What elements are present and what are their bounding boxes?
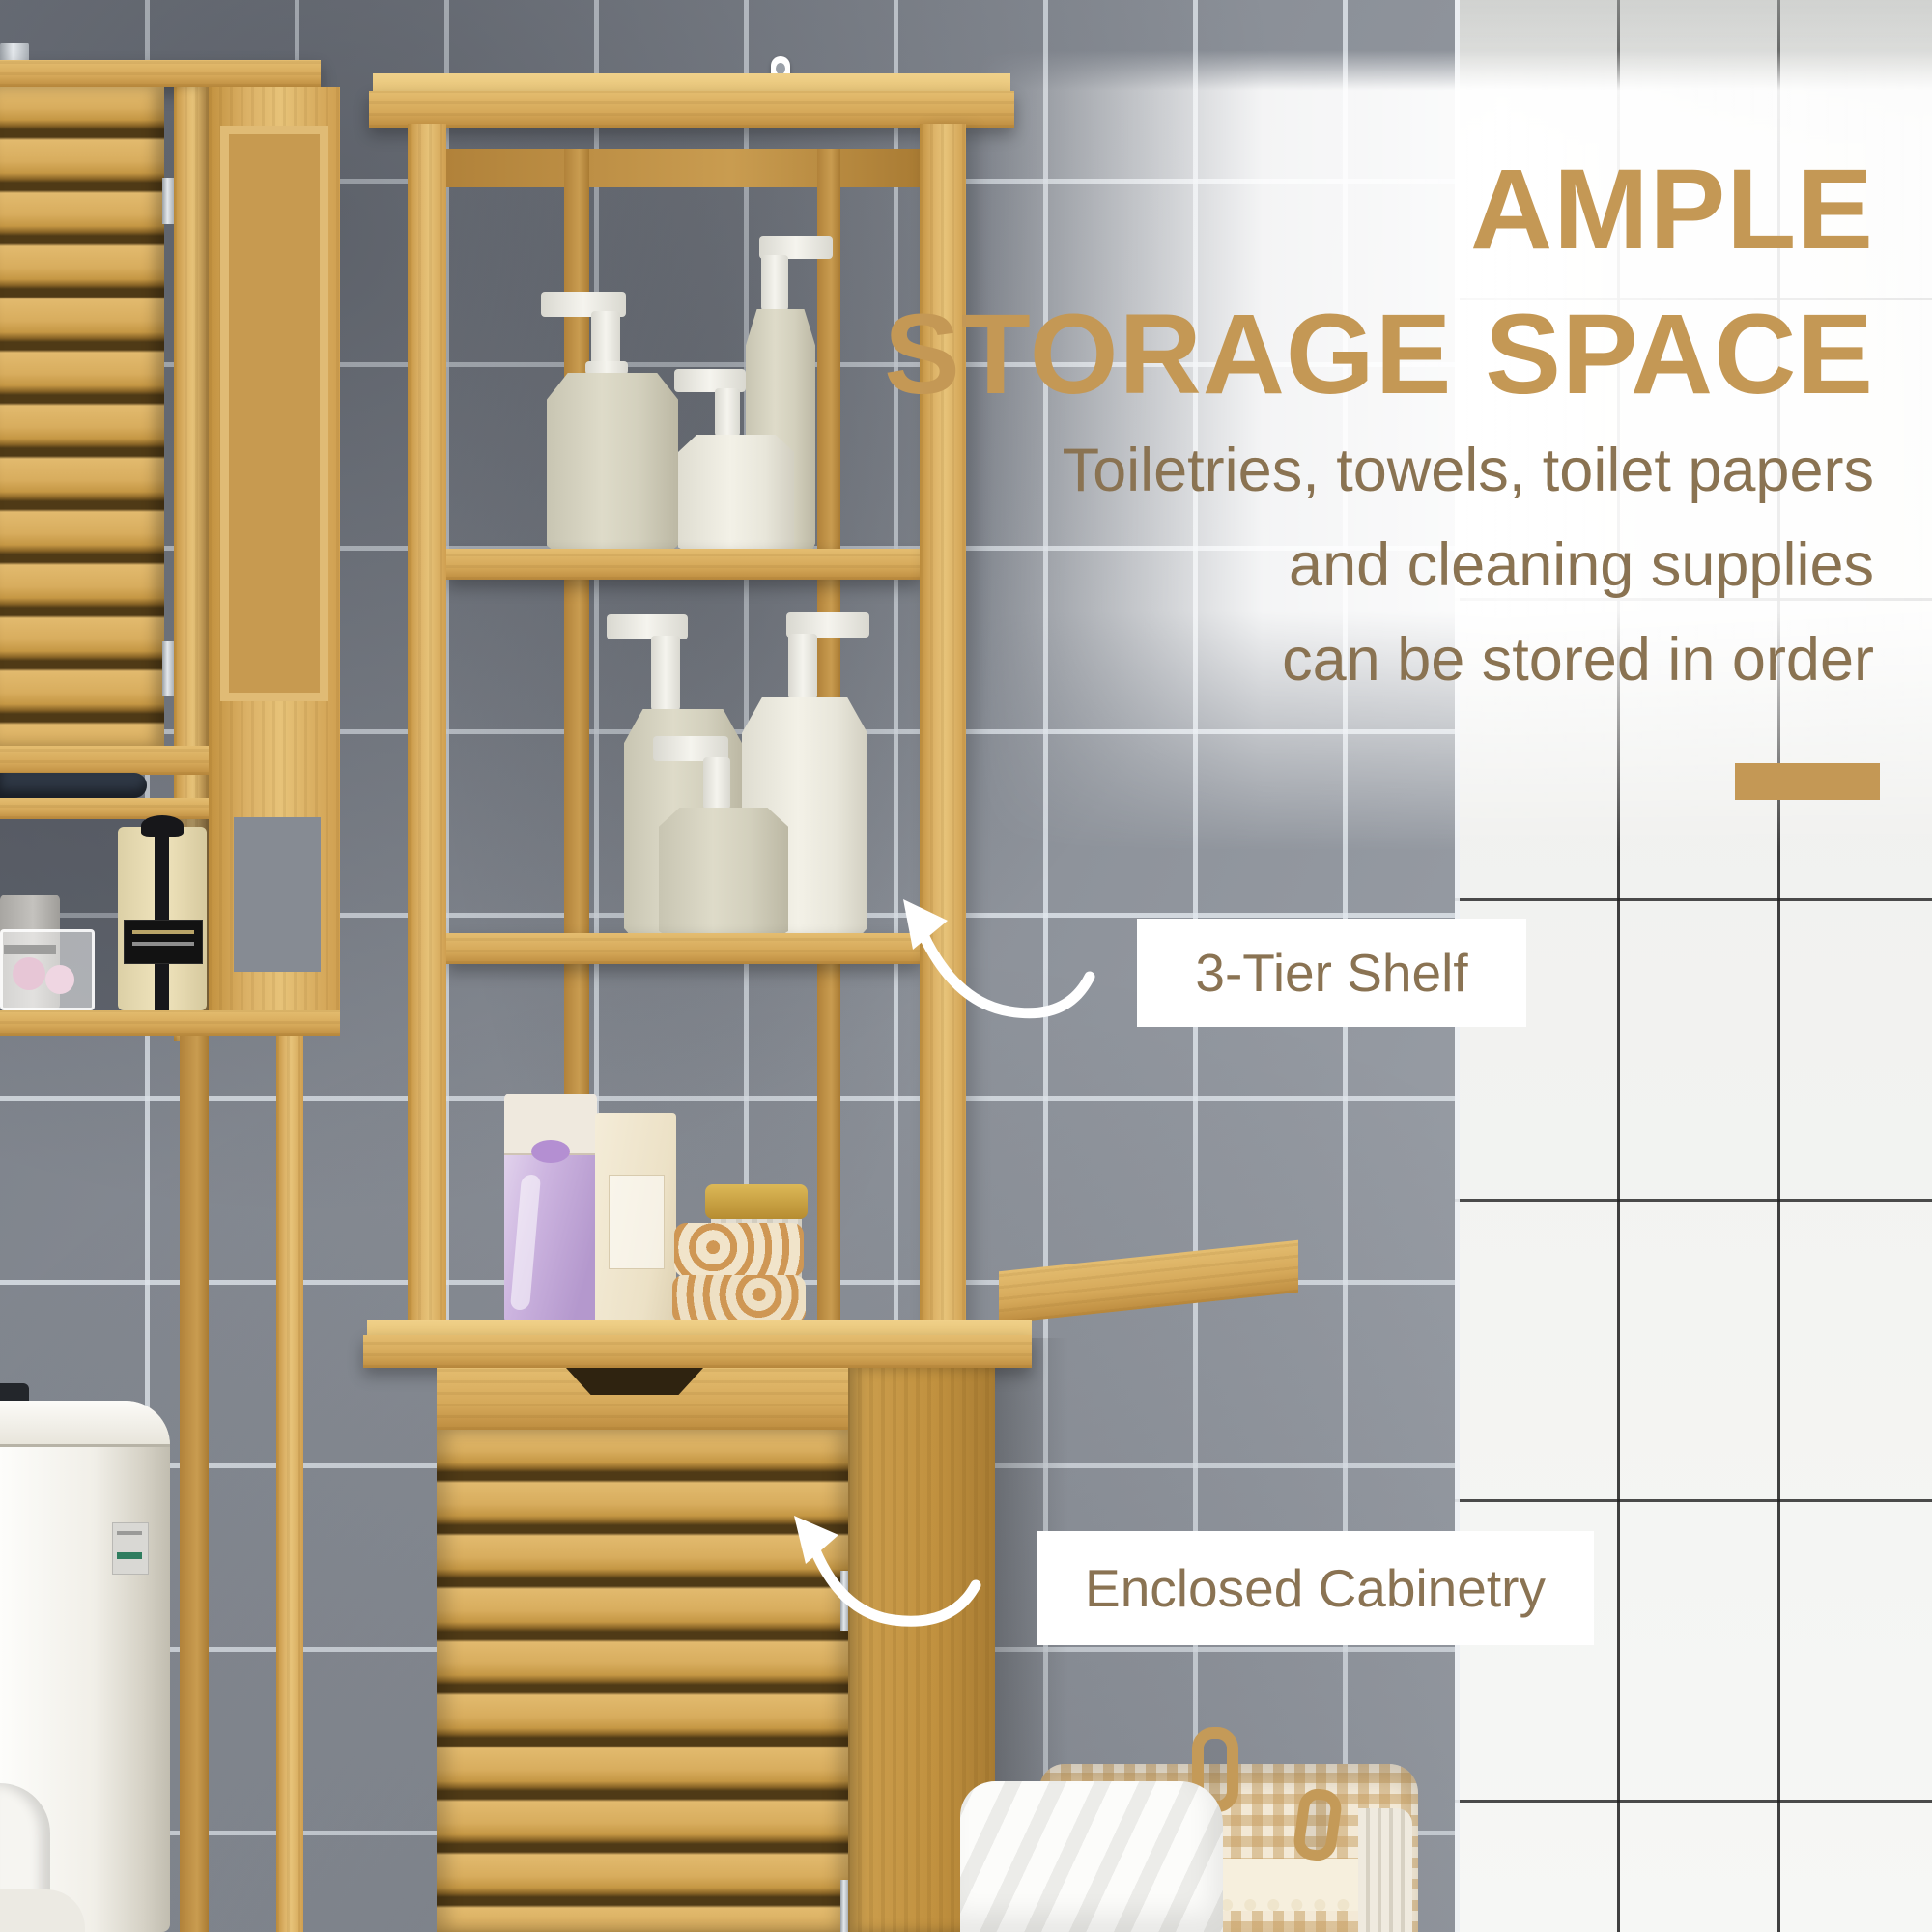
left-cabinet-louver-door (0, 87, 164, 746)
basket-wicker-edge (1358, 1808, 1412, 1932)
callout-cabinet: Enclosed Cabinetry (1037, 1531, 1594, 1645)
lavender-gift-bag (504, 1094, 597, 1323)
left-cabinet-side-panel (209, 87, 340, 746)
toilet-sticker-line (117, 1531, 142, 1535)
subtext-line-1: Toiletries, towels, toilet papers (821, 423, 1874, 518)
pink-petal-2 (45, 965, 74, 994)
subtext-line-3: can be stored in order (821, 612, 1874, 707)
left-door-hinge-top (162, 178, 174, 224)
pump-stem (651, 636, 680, 711)
callout-shelf: 3-Tier Shelf (1137, 919, 1526, 1027)
door-hinge-bottom (840, 1880, 848, 1932)
shelf-top-surface (373, 73, 1010, 93)
candle-label-line2 (132, 942, 194, 946)
soap-bar-bottom (672, 1275, 806, 1323)
callout-shelf-label: 3-Tier Shelf (1195, 942, 1467, 1004)
left-cabinet-side-frame (209, 746, 340, 1010)
headline-line-1: AMPLE (821, 137, 1874, 282)
pump-stem (715, 388, 740, 437)
subtext: Toiletries, towels, toilet papers and cl… (821, 423, 1874, 707)
left-unit-front-leg (276, 1036, 303, 1932)
headline: AMPLE STORAGE SPACE (821, 137, 1874, 427)
left-door-hinge-bottom (162, 641, 174, 696)
left-unit-back-leg (180, 1036, 209, 1932)
soap-bar-top (674, 1223, 804, 1277)
side-frame-opening (234, 817, 321, 972)
curved-arrow-cabinet (763, 1502, 995, 1657)
pump-stem (761, 255, 788, 311)
petal-gift-box (0, 929, 95, 1010)
beige-bottle-left (547, 373, 678, 551)
candle-label (124, 920, 203, 964)
toilet-tank-lid (0, 1401, 170, 1447)
cream-pillar-candle (118, 827, 207, 1010)
shelf-board-3 (446, 933, 922, 964)
shelf-top-board (369, 91, 1014, 128)
pink-petal (13, 957, 45, 990)
gift-bag-gloss (510, 1175, 541, 1310)
small-beige-bottle-front (659, 808, 788, 935)
toilet-sticker-stripe (117, 1552, 142, 1559)
subtext-line-2: and cleaning supplies (821, 518, 1874, 612)
product-marketing-image: AMPLE STORAGE SPACE Toiletries, towels, … (0, 0, 1932, 1932)
cabinet-top-board (363, 1335, 1032, 1368)
cream-product-box (595, 1113, 676, 1323)
side-panel-inset (220, 126, 328, 701)
candle-bow (141, 815, 184, 837)
candle-ribbon (155, 827, 169, 1010)
front-post-left (408, 124, 446, 1329)
gift-bag-ribbon-bow (531, 1140, 570, 1163)
toilet-sticker (112, 1522, 149, 1575)
left-cabinet-top-board (0, 60, 321, 87)
pump-stem (788, 634, 817, 699)
curved-arrow-shelf (865, 884, 1116, 1038)
left-cabinet-rail (0, 746, 209, 775)
accent-dash (1735, 763, 1880, 800)
callout-cabinet-label: Enclosed Cabinetry (1085, 1557, 1546, 1619)
white-towel (960, 1781, 1223, 1932)
left-cabinet-bottom-board (0, 1010, 340, 1036)
pump-collar (585, 361, 628, 375)
folded-dark-towel (0, 773, 147, 798)
product-box-label (609, 1175, 665, 1269)
white-bottle-front (678, 435, 794, 551)
headline-line-2: STORAGE SPACE (821, 282, 1874, 427)
candle-label-line (132, 930, 194, 934)
pump-stem (703, 757, 730, 810)
jar-gold-lid (705, 1184, 808, 1219)
